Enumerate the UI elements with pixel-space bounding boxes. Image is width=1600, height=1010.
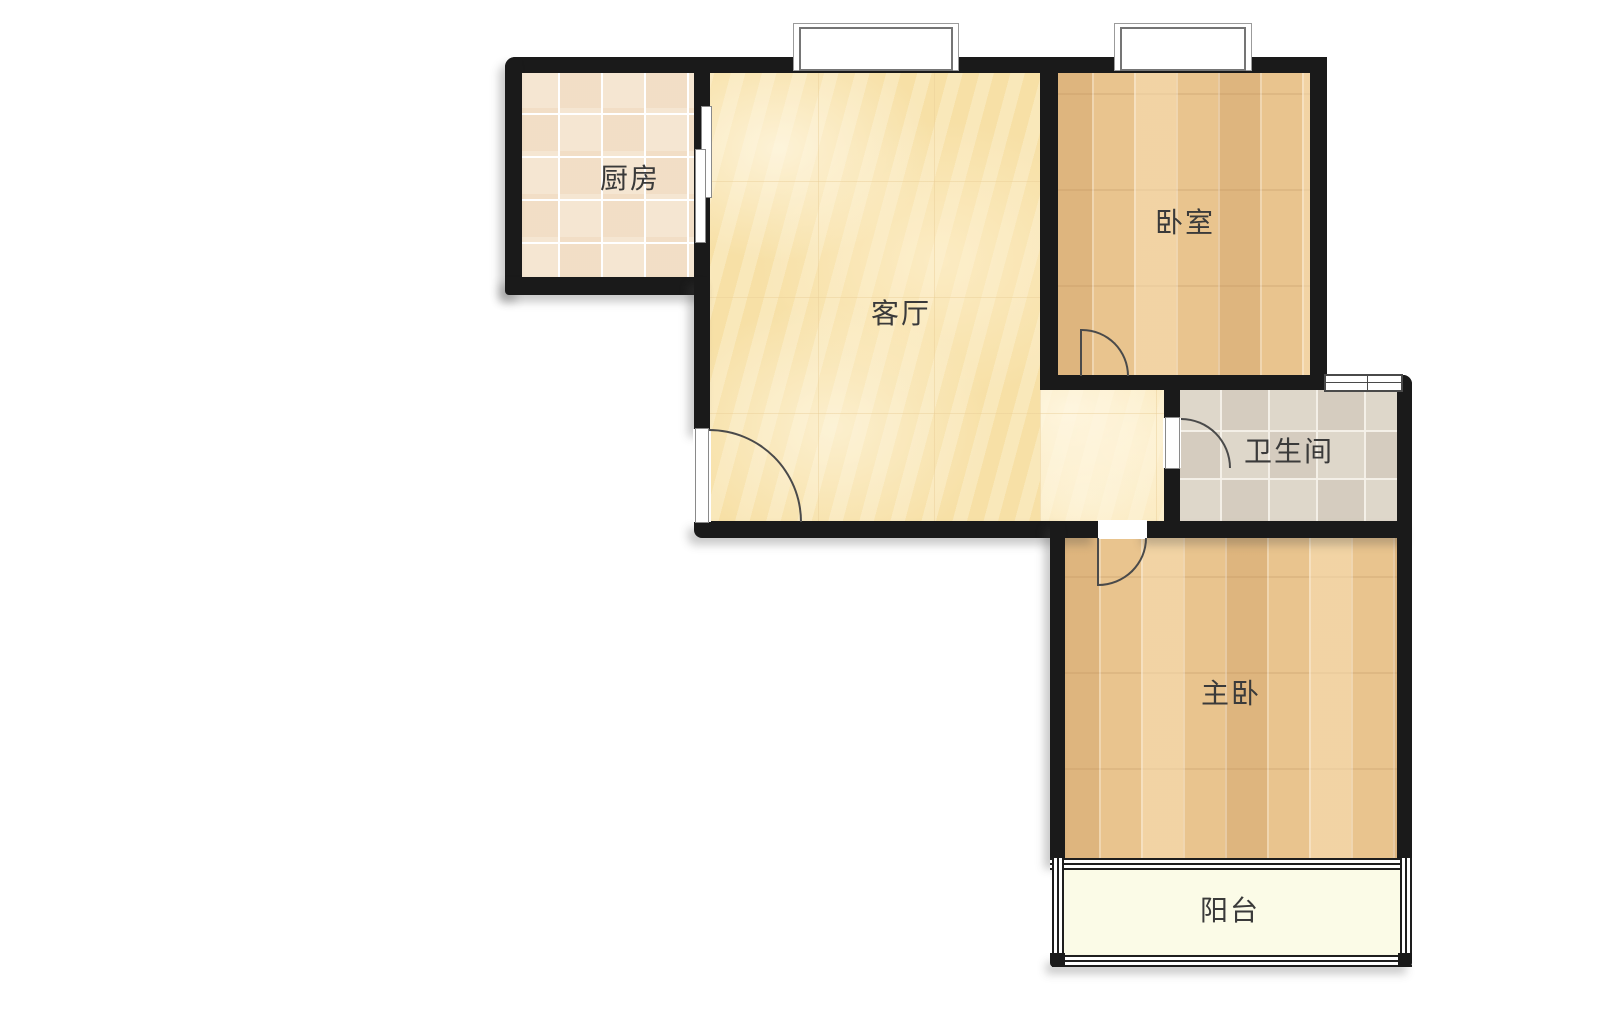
room-label-bathroom: 卫生间: [1244, 430, 1334, 470]
wall-bottom-left-segment: [694, 521, 1098, 538]
room-label-bedroom: 卧室: [1155, 201, 1215, 241]
wall-living-bedroom-divider: [1040, 57, 1058, 390]
room-label-living-room: 客厅: [871, 292, 931, 332]
balcony-glazing-right: [1400, 858, 1412, 967]
balcony-glazing-top: [1050, 858, 1412, 870]
room-label-balcony: 阳台: [1200, 889, 1260, 929]
wall-kitchen-bottom: [505, 277, 710, 295]
wall-master-left: [1050, 521, 1065, 862]
room-label-kitchen: 厨房: [600, 157, 660, 197]
bathroom-window: [1324, 374, 1403, 392]
wall-right: [1397, 375, 1412, 862]
entry-door-leaf: [695, 428, 709, 523]
kitchen-sliding-door-panel-left: [695, 149, 706, 243]
balcony-corner-post-left: [1050, 953, 1065, 967]
wall-bottom-right-segment: [1147, 521, 1412, 538]
master-bedroom-door-opening: [1098, 520, 1147, 539]
wall-bathroom-left-lower: [1164, 468, 1180, 538]
bathroom-window-mullion-horizontal: [1326, 382, 1401, 383]
balcony-glazing-left: [1052, 858, 1064, 967]
bathroom-window-mullion-vertical: [1367, 376, 1368, 390]
balcony-glazing-bottom: [1052, 955, 1412, 967]
bathroom-door-leaf: [1165, 417, 1180, 469]
bedroom-window: [1120, 27, 1246, 71]
living-room-floor-lower: [1040, 383, 1172, 530]
living-room-window: [799, 27, 953, 71]
floorplan-canvas: 厨房 客厅 卧室 卫生间 主卧 阳台: [0, 0, 1600, 1010]
wall-living-left: [694, 277, 710, 430]
wall-bedroom-right: [1310, 57, 1327, 390]
wall-kitchen-left: [505, 57, 522, 295]
wall-bathroom-left-upper: [1164, 375, 1180, 418]
room-label-master-bedroom: 主卧: [1201, 672, 1261, 712]
balcony-corner-post-right: [1398, 953, 1412, 967]
